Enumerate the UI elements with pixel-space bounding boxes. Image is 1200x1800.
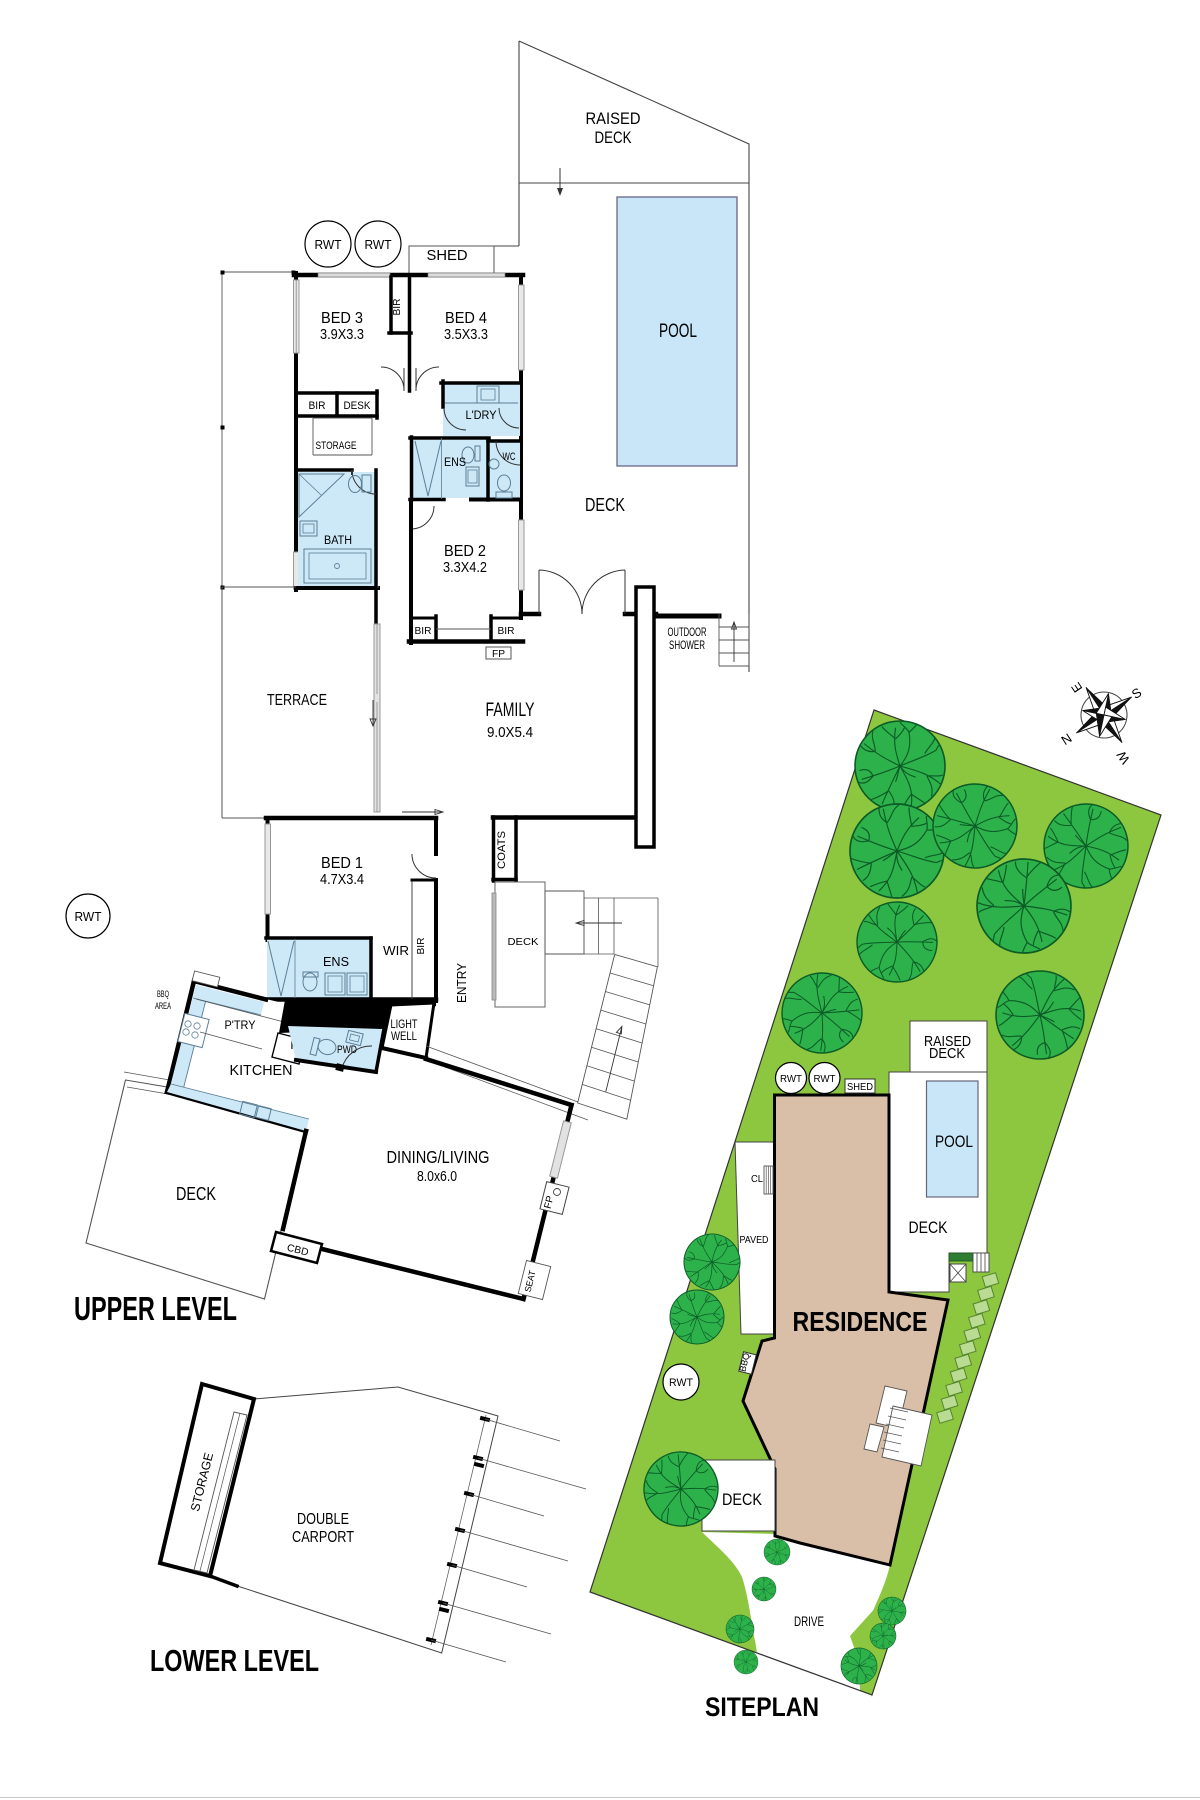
svg-text:3.3X4.2: 3.3X4.2	[443, 559, 487, 576]
svg-text:WC: WC	[503, 451, 516, 463]
svg-text:DESK: DESK	[344, 400, 372, 412]
svg-text:LOWER LEVEL: LOWER LEVEL	[150, 1643, 319, 1678]
svg-text:RESIDENCE: RESIDENCE	[793, 1306, 928, 1337]
svg-text:UPPER LEVEL: UPPER LEVEL	[74, 1290, 237, 1327]
svg-text:DECK: DECK	[595, 129, 632, 147]
svg-text:BIR: BIR	[392, 299, 403, 316]
svg-text:P'TRY: P'TRY	[225, 1018, 256, 1032]
svg-text:SITEPLAN: SITEPLAN	[705, 1692, 819, 1722]
svg-text:ENS: ENS	[323, 955, 349, 969]
svg-text:4.7X3.4: 4.7X3.4	[320, 871, 364, 888]
svg-text:DECK: DECK	[909, 1218, 949, 1237]
svg-text:8.0x6.0: 8.0x6.0	[417, 1169, 457, 1185]
svg-text:RWT: RWT	[669, 1377, 693, 1389]
svg-text:PWD: PWD	[337, 1044, 357, 1056]
svg-text:KITCHEN: KITCHEN	[230, 1063, 293, 1079]
svg-text:DECK: DECK	[585, 494, 626, 515]
svg-text:AREA: AREA	[155, 1001, 171, 1011]
svg-text:TERRACE: TERRACE	[267, 692, 327, 709]
svg-text:SHOWER: SHOWER	[669, 638, 705, 652]
svg-text:ENS: ENS	[444, 457, 466, 469]
svg-text:ENTRY: ENTRY	[454, 963, 469, 1003]
svg-text:RWT: RWT	[315, 237, 342, 252]
svg-text:DECK: DECK	[929, 1046, 965, 1062]
svg-text:BBQ: BBQ	[157, 989, 169, 999]
svg-text:BIR: BIR	[498, 626, 515, 637]
svg-text:RWT: RWT	[780, 1074, 802, 1085]
svg-text:BED 1: BED 1	[321, 855, 363, 872]
svg-text:POOL: POOL	[659, 321, 697, 342]
svg-text:FP: FP	[492, 649, 505, 660]
svg-text:BED 2: BED 2	[444, 543, 486, 560]
svg-text:POOL: POOL	[935, 1133, 973, 1151]
svg-text:L'DRY: L'DRY	[466, 410, 497, 422]
svg-text:DRIVE: DRIVE	[794, 1614, 824, 1629]
svg-text:DECK: DECK	[176, 1183, 217, 1204]
svg-text:BIR: BIR	[309, 400, 326, 412]
svg-text:BED 4: BED 4	[445, 310, 487, 327]
svg-text:DECK: DECK	[508, 937, 539, 948]
svg-text:DOUBLE: DOUBLE	[297, 1511, 349, 1528]
svg-text:COATS: COATS	[496, 831, 508, 869]
svg-text:RWT: RWT	[75, 909, 102, 924]
svg-text:3.5X3.3: 3.5X3.3	[444, 326, 488, 343]
svg-text:BED 3: BED 3	[321, 310, 363, 327]
svg-text:FAMILY: FAMILY	[486, 700, 535, 721]
svg-text:DINING/LIVING: DINING/LIVING	[387, 1147, 490, 1167]
svg-text:BIR: BIR	[416, 938, 427, 955]
svg-text:RWT: RWT	[365, 237, 392, 252]
svg-text:RAISED: RAISED	[586, 110, 641, 128]
svg-text:WELL: WELL	[391, 1029, 417, 1043]
svg-text:OUTDOOR: OUTDOOR	[668, 625, 707, 639]
svg-text:SHED: SHED	[427, 248, 468, 264]
svg-text:CARPORT: CARPORT	[292, 1529, 354, 1546]
svg-text:BIR: BIR	[415, 626, 432, 637]
svg-text:RWT: RWT	[814, 1074, 836, 1085]
svg-text:PAVED: PAVED	[740, 1234, 769, 1246]
svg-text:STORAGE: STORAGE	[316, 440, 357, 452]
svg-text:9.0X5.4: 9.0X5.4	[487, 724, 533, 741]
svg-text:DECK: DECK	[722, 1490, 763, 1509]
svg-text:WIR: WIR	[383, 944, 409, 958]
svg-text:BATH: BATH	[324, 535, 352, 547]
svg-text:CL: CL	[751, 1174, 763, 1185]
svg-text:3.9X3.3: 3.9X3.3	[320, 326, 364, 343]
svg-text:SHED: SHED	[847, 1082, 873, 1093]
